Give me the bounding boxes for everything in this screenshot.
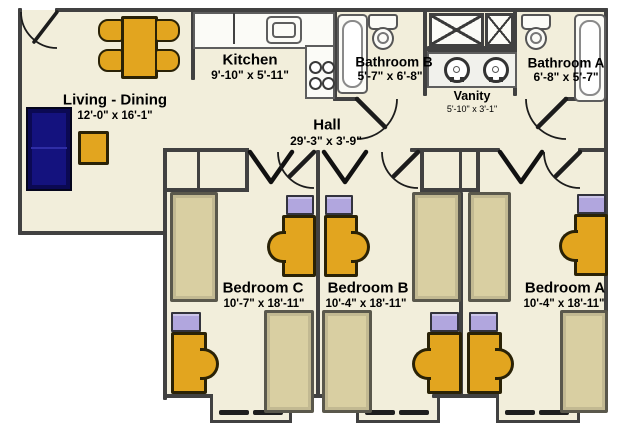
bed <box>322 310 372 413</box>
dresser <box>430 312 459 332</box>
dining-chair <box>98 19 123 42</box>
room-dims-kitchen: 9'-10" x 5'-11" <box>211 68 289 82</box>
room-dims-bathroom-a: 6'-8" x 5'-7" <box>533 70 598 84</box>
sink-drain <box>453 66 460 73</box>
bed <box>170 192 218 302</box>
toilet-b-bowl <box>372 27 394 50</box>
toilet-b-bowl-inner <box>377 32 389 44</box>
kitchen-counter <box>193 12 335 49</box>
wall-bottom <box>432 394 498 398</box>
dresser <box>286 195 314 215</box>
sofa <box>26 107 72 191</box>
closet-bedrooms-b-a <box>420 148 480 192</box>
desk <box>427 332 462 394</box>
room-label-living-dining: Living - Dining <box>63 92 167 109</box>
vanity-counter <box>427 52 517 88</box>
closet-bedroom-c <box>163 148 249 192</box>
dining-chair <box>98 49 123 72</box>
dresser <box>577 194 606 214</box>
closet-divider <box>459 152 462 188</box>
wall-left <box>18 8 22 235</box>
wall-bottom <box>163 394 213 398</box>
room-dims-bedroom-c: 10'-7" x 18'-11" <box>224 298 305 310</box>
wall-bedroomC-B-divider <box>316 150 320 396</box>
room-label-bedroom-a: Bedroom A <box>525 280 605 297</box>
vanity-sink-icon <box>444 57 470 83</box>
window-icon <box>219 410 249 415</box>
stove <box>305 45 335 99</box>
shower-stall <box>429 13 484 47</box>
dresser <box>469 312 498 332</box>
window-icon <box>399 410 429 415</box>
wall-bathroomB-bottom <box>333 97 359 101</box>
room-label-vanity: Vanity <box>454 89 491 103</box>
room-dims-vanity: 5'-10" x 3'-1" <box>447 104 497 114</box>
dining-chair <box>155 49 180 72</box>
kitchen-sink <box>266 16 302 44</box>
wall-living-bottom <box>18 231 167 235</box>
room-label-bathroom-a: Bathroom A <box>528 56 605 71</box>
room-dims-hall: 29'-3" x 3'-9" <box>290 134 362 148</box>
room-label-bedroom-c: Bedroom C <box>223 280 304 297</box>
room-dims-bedroom-b: 10'-4" x 18'-11" <box>326 298 407 310</box>
floor-plan: Living - Dining 12'-0" x 16'-1" Kitchen … <box>0 0 630 435</box>
room-dims-bedroom-a: 10'-4" x 18'-11" <box>524 298 605 310</box>
room-label-kitchen: Kitchen <box>222 52 277 69</box>
room-label-hall: Hall <box>313 117 341 134</box>
window-icon <box>505 410 535 415</box>
room-label-bathroom-b: Bathroom B <box>355 55 432 70</box>
bed <box>560 310 608 413</box>
burner-icon <box>309 77 322 90</box>
burner-icon <box>322 61 335 74</box>
sofa-cushion-divider <box>31 147 67 149</box>
vanity-sink-icon <box>483 57 509 83</box>
toilet-a-bowl-inner <box>530 32 542 44</box>
toilet-a-bowl <box>525 27 547 50</box>
desk <box>574 214 608 276</box>
bed <box>412 192 461 302</box>
shower-stall-panel <box>485 13 514 47</box>
burner-icon <box>322 77 335 90</box>
room-dims-bathroom-b: 5'-7" x 6'-8" <box>357 69 422 83</box>
dresser <box>171 312 201 332</box>
dining-table <box>121 16 158 79</box>
bed <box>468 192 511 302</box>
wall-bedroomA-vestibule <box>578 148 606 152</box>
room-label-bedroom-b: Bedroom B <box>328 280 409 297</box>
side-table <box>78 131 109 165</box>
closet-divider <box>197 152 200 188</box>
counter-divider <box>233 13 235 44</box>
desk <box>282 215 316 277</box>
dining-chair <box>155 19 180 42</box>
bed <box>264 310 314 413</box>
dresser <box>325 195 353 215</box>
sink-drain <box>492 66 499 73</box>
burner-icon <box>309 61 322 74</box>
room-dims-living-dining: 12'-0" x 16'-1" <box>77 110 152 122</box>
wall-hall-bottom-stub <box>478 148 500 152</box>
